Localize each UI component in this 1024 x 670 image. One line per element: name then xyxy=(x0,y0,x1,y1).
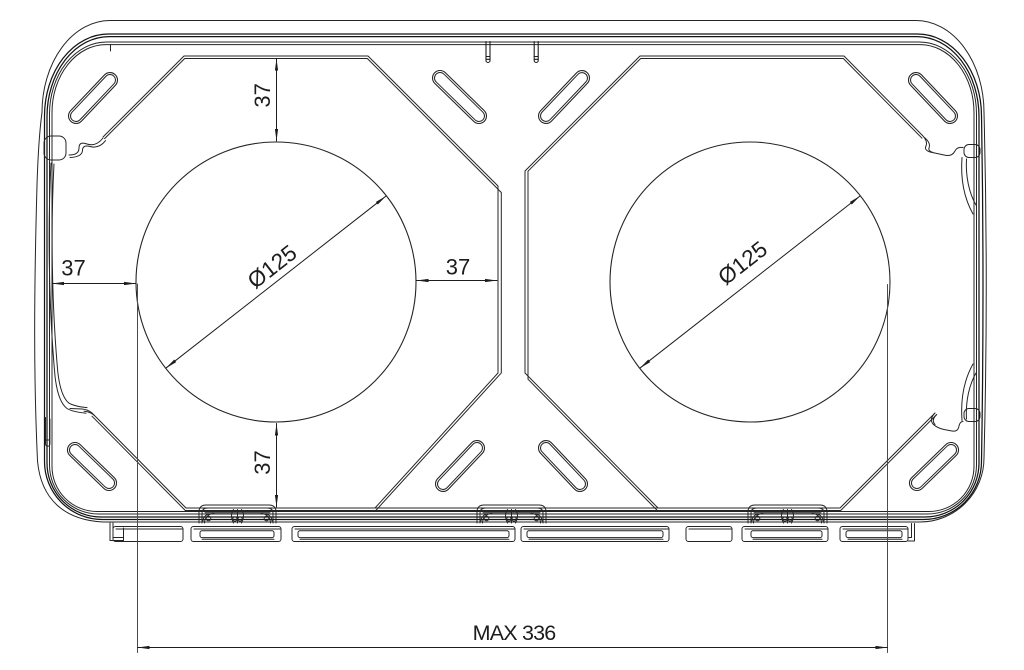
svg-text:37: 37 xyxy=(446,255,470,280)
svg-text:37: 37 xyxy=(250,450,275,474)
svg-text:37: 37 xyxy=(61,256,85,281)
svg-text:MAX 336: MAX 336 xyxy=(473,621,557,645)
svg-text:37: 37 xyxy=(250,83,275,107)
svg-text:Ø125: Ø125 xyxy=(713,236,772,290)
